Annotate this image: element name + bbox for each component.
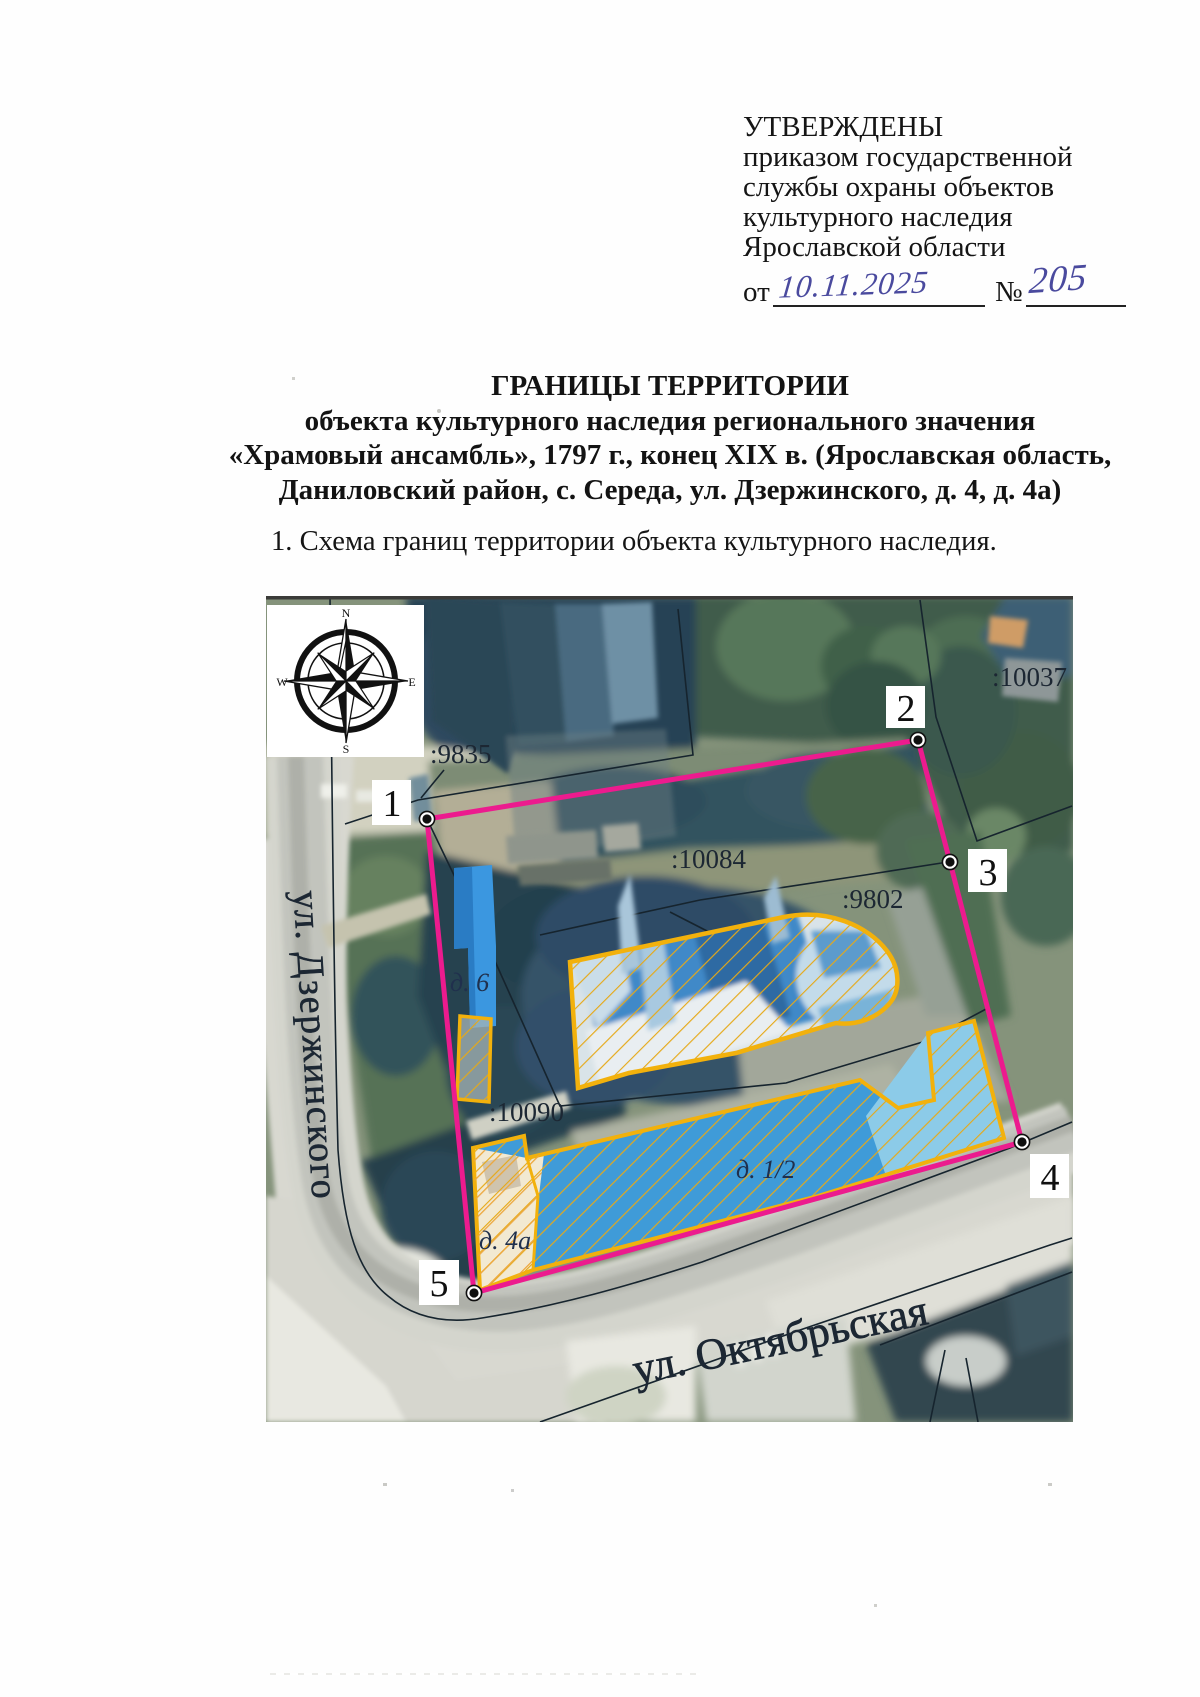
svg-text:д. 1/2: д. 1/2 (736, 1155, 795, 1184)
svg-text::10084: :10084 (671, 844, 747, 874)
svg-text:4: 4 (1041, 1157, 1060, 1199)
svg-text:N: N (342, 606, 351, 620)
svg-text:S: S (343, 742, 350, 756)
svg-text::10037: :10037 (992, 662, 1067, 692)
svg-text::9835: :9835 (430, 739, 492, 769)
svg-text:1: 1 (383, 783, 402, 825)
svg-text:W: W (276, 675, 288, 689)
svg-text:2: 2 (897, 688, 916, 730)
svg-text:E: E (408, 675, 415, 689)
svg-text:д. 4а: д. 4а (479, 1226, 531, 1255)
svg-text::10090: :10090 (489, 1097, 564, 1127)
svg-text:3: 3 (979, 852, 998, 894)
svg-text::9802: :9802 (842, 884, 904, 914)
svg-text:д. 6: д. 6 (450, 968, 489, 997)
svg-text:5: 5 (430, 1263, 449, 1305)
